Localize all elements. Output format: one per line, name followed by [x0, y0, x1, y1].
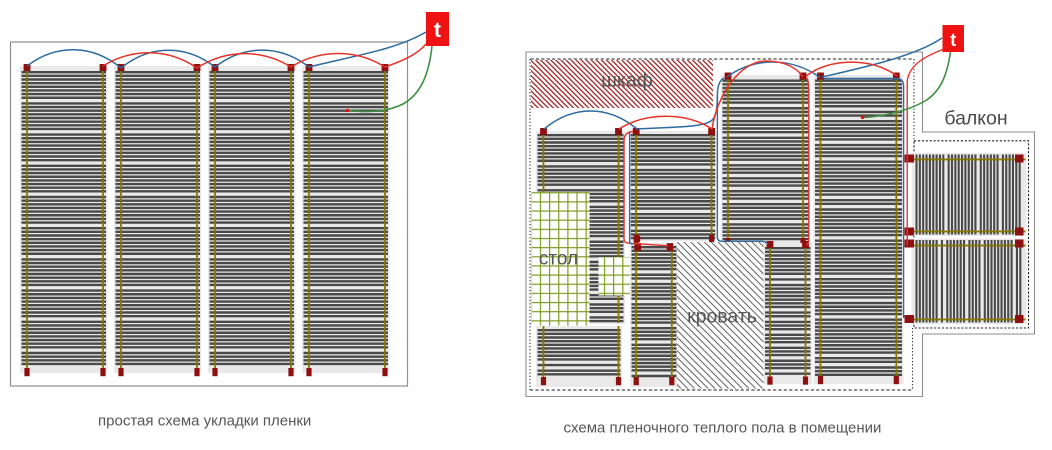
svg-text:кровать: кровать	[687, 306, 757, 328]
svg-text:шкаф: шкаф	[601, 70, 653, 92]
svg-text:t: t	[950, 30, 956, 50]
svg-text:t: t	[434, 19, 441, 42]
svg-text:балкон: балкон	[944, 108, 1007, 130]
svg-text:стол: стол	[539, 249, 578, 270]
svg-text:простая схема укладки пленки: простая схема укладки пленки	[98, 413, 311, 430]
svg-text:схема пленочного теплого пола: схема пленочного теплого пола в помещени…	[564, 420, 882, 437]
